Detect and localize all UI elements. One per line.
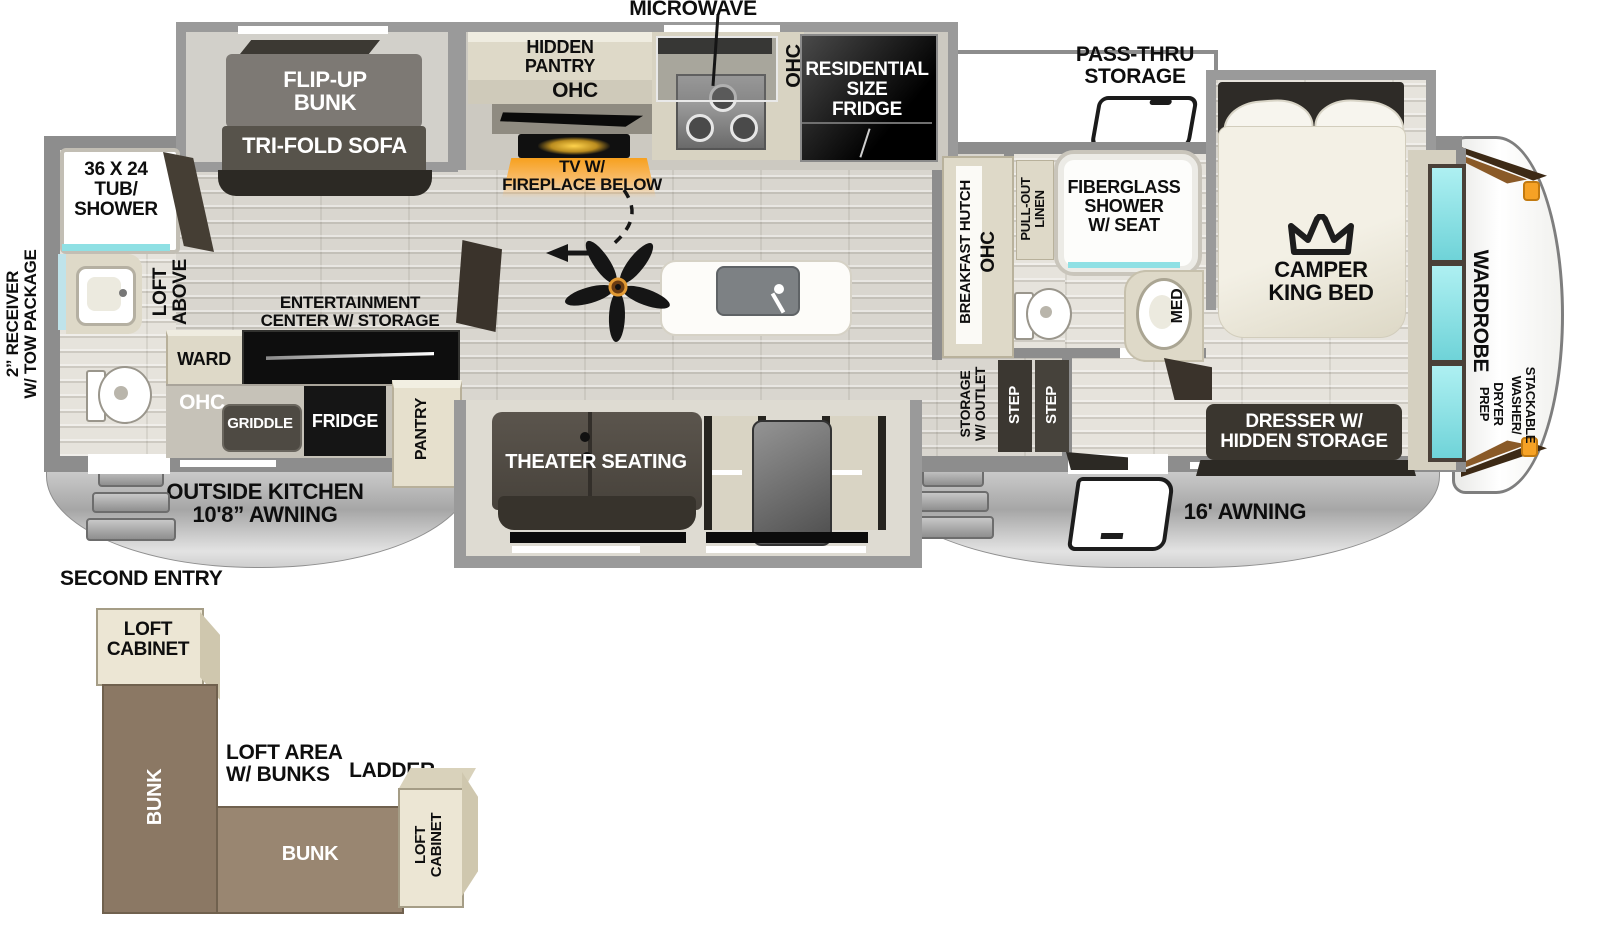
main-entry-step-2 xyxy=(917,491,989,512)
receiver-label: 2” RECEIVERW/ TOW PACKAGE xyxy=(4,219,46,429)
loft-area-label: LOFT AREAW/ BUNKS xyxy=(226,742,352,786)
loft-bunk-horizontal-label: BUNK xyxy=(240,844,380,865)
ward-label: WARD xyxy=(168,350,240,369)
chair-split-left xyxy=(712,470,742,475)
dryer-prep-label: DRYERPREP xyxy=(1477,372,1505,436)
rear-sink-faucet xyxy=(119,289,127,297)
dinette-table xyxy=(752,420,832,546)
wardrobe-label: WARDROBE xyxy=(1467,241,1491,381)
rear-bath-sink xyxy=(76,266,136,326)
theater-seat-front xyxy=(498,496,696,530)
bunk-slide-window xyxy=(238,26,388,34)
flip-up-bunk-label: FLIP-UPBUNK xyxy=(250,68,400,114)
cap-marker-light-top xyxy=(1523,181,1540,201)
fiberglass-shower-label: FIBERGLASSSHOWERW/ SEAT xyxy=(1060,178,1188,235)
mid-toilet-seat-dot xyxy=(1040,306,1052,318)
loft-cabinet-tl-label: LOFTCABINET xyxy=(98,620,198,660)
window-bottom-1 xyxy=(180,460,276,467)
second-entry-opening xyxy=(88,454,170,474)
island-sink xyxy=(716,266,800,316)
entertainment-label: ENTERTAINMENTCENTER W/ STORAGE xyxy=(248,294,452,330)
pullout-linen-label: PULL-OUTLINEN xyxy=(1019,161,1049,257)
second-entry-step-3 xyxy=(86,518,176,541)
microwave-label: MICROWAVE xyxy=(608,0,778,20)
fridge-label: RESIDENTIALSIZEFRIDGE xyxy=(802,60,932,120)
outside-fridge-label: FRIDGE xyxy=(304,412,386,431)
tub-shower-label: 36 X 24TUB/SHOWER xyxy=(68,160,164,220)
cupholder-1 xyxy=(580,432,590,442)
rear-bath-window xyxy=(58,254,66,330)
wardrobe-mirror-2 xyxy=(1428,262,1466,364)
step-label-1: STEP xyxy=(1007,362,1023,448)
bunk-platform xyxy=(240,40,380,54)
rear-toilet-bowl xyxy=(98,366,152,424)
loft-cabinet-br-side-bevel xyxy=(462,772,478,896)
main-entry-step-3 xyxy=(912,516,994,539)
breakfast-hutch-label: BREAKFAST HUTCH xyxy=(958,164,976,340)
rear-toilet-seat-dot xyxy=(114,386,128,400)
rv-floorplan-diagram: OUTSIDE KITCHEN10'8” AWNING 16' AWNING P… xyxy=(0,0,1600,928)
entertainment-slit xyxy=(266,352,434,360)
tv-screen xyxy=(518,134,630,158)
step-label-2: STEP xyxy=(1044,362,1060,448)
stackable-washer-label: STACKABLEWASHER/ xyxy=(1509,356,1537,454)
theater-window-1 xyxy=(512,546,640,553)
theater-floor-mat-1 xyxy=(510,532,686,543)
crown-icon xyxy=(1288,214,1354,260)
chair-split-right xyxy=(830,470,862,475)
second-entry-step-2 xyxy=(92,492,170,513)
burner-3 xyxy=(730,114,758,142)
burner-2 xyxy=(686,114,714,142)
island-partition-panel xyxy=(456,240,502,332)
shower-glass-strip xyxy=(1068,262,1180,268)
hutch-ohc-label: OHC xyxy=(979,224,999,280)
loft-bunk-vertical-label: BUNK xyxy=(145,737,171,857)
fridge-door-split xyxy=(859,128,870,157)
island-faucet xyxy=(774,284,784,294)
griddle-label: GRIDDLE xyxy=(222,416,298,432)
tri-fold-sofa-label: TRI-FOLD SOFA xyxy=(237,134,412,157)
theater-seating-label: THEATER SEATING xyxy=(498,452,694,473)
pantry-label: PANTRY xyxy=(414,383,434,475)
loft-cabinet-br-label: LOFTCABINET xyxy=(413,789,445,901)
wardrobe-mirror-1 xyxy=(1428,164,1466,264)
tv-glow xyxy=(538,137,610,155)
wardrobe-mirror-3 xyxy=(1428,362,1466,462)
storage-outlet-label: STORAGEW/ OUTLET xyxy=(958,358,990,450)
fridge-freezer-line xyxy=(802,122,932,124)
second-entry-label: SECOND ENTRY xyxy=(60,568,240,590)
wall-hutch-left xyxy=(932,146,942,360)
mid-toilet-bowl xyxy=(1026,288,1072,340)
pass-thru-storage-label: PASS-THRUSTORAGE xyxy=(1035,44,1235,88)
main-entry-door-handle xyxy=(1100,533,1123,539)
rear-sink-basin xyxy=(87,277,121,311)
dresser-shape xyxy=(1196,460,1416,476)
kitchen-ohc-label: OHC xyxy=(530,80,620,102)
main-entry-door-icon xyxy=(1067,477,1175,551)
sofa-base xyxy=(218,170,432,196)
ceiling-fan-icon xyxy=(540,165,710,345)
outside-kitchen-awning-label: OUTSIDE KITCHEN10'8” AWNING xyxy=(140,480,390,526)
island-faucet-stem xyxy=(771,292,785,313)
hidden-pantry-label: HIDDENPANTRY xyxy=(490,38,630,76)
pass-thru-door-handle xyxy=(1149,99,1172,105)
theater-window-2 xyxy=(706,546,866,553)
theater-floor-mat-2 xyxy=(706,532,868,543)
med-label: MED xyxy=(1170,280,1186,332)
dresser-label: DRESSER W/HIDDEN STORAGE xyxy=(1208,412,1400,452)
camper-king-bed-label: CAMPERKING BED xyxy=(1246,258,1396,304)
